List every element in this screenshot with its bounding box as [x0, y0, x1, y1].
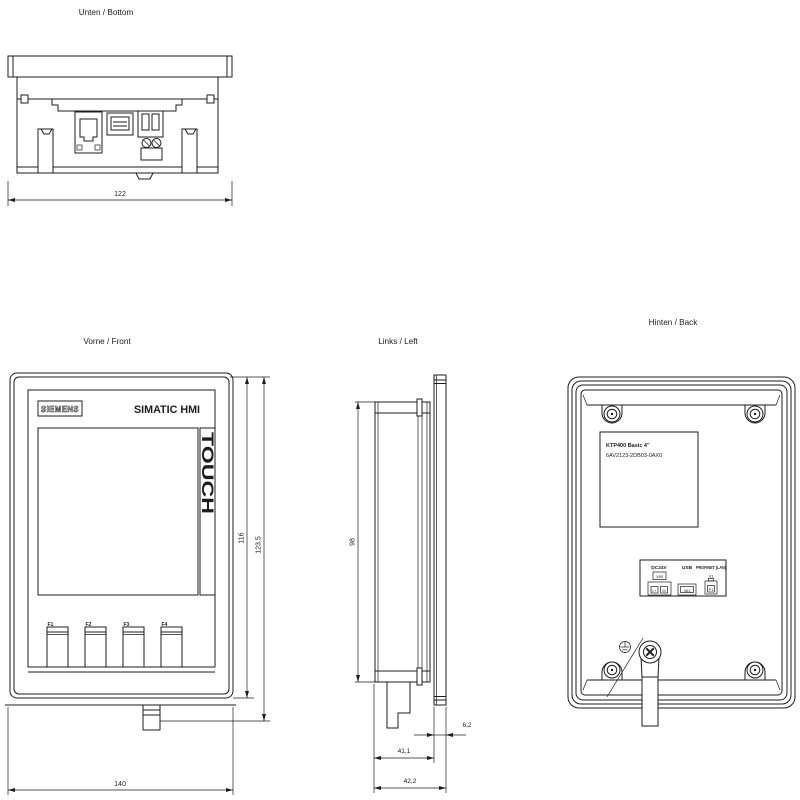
function-key-f3: F3	[123, 622, 144, 667]
power-pin-l-label: L+	[652, 589, 657, 593]
bottom-view: Unten / Bottom	[0, 0, 260, 215]
screw-bottom-right-icon	[745, 662, 765, 680]
mounting-clip-left	[38, 129, 53, 173]
dimension-width-140: 140	[8, 707, 233, 795]
dim-122-label: 122	[114, 191, 126, 198]
lan-interface-id: X1	[709, 574, 715, 579]
dimension-depth-42-2: 42,2	[374, 778, 446, 790]
type-plate-model: KTP400 Basic 4"	[606, 443, 650, 449]
power-port-legend: DC24V X80 L+ M	[648, 565, 671, 595]
touch-text: TOUCH	[198, 432, 216, 514]
dim-41-1-label: 41,1	[398, 748, 411, 755]
power-connector-icon	[138, 111, 163, 160]
dim-116-label: 116	[239, 532, 246, 543]
ethernet-port-icon	[75, 112, 102, 153]
screw-top-right-icon	[745, 405, 765, 423]
front-view-title: Vorne / Front	[83, 337, 131, 346]
display-area	[38, 428, 198, 595]
left-view: Links / Left 98	[330, 330, 510, 800]
technical-drawing-page: Unten / Bottom	[0, 0, 800, 800]
mounting-clip-right	[182, 129, 197, 173]
product-text: SIMATIC HMI	[134, 404, 200, 416]
dimension-depth-41-1: 41,1	[374, 684, 434, 793]
usb-connector-id: X61	[683, 588, 691, 593]
usb-port-legend: USB X61	[678, 565, 696, 595]
key-f2-label: F2	[86, 622, 92, 628]
key-f3-label: F3	[124, 622, 130, 628]
left-connector-step	[387, 682, 410, 728]
dimension-height-98: 98	[350, 402, 376, 682]
dim-123-5-label: 123,5	[256, 536, 263, 554]
usb-port-icon	[107, 113, 133, 135]
bottom-center-tab	[136, 173, 153, 179]
touchscreen: TOUCH	[38, 428, 216, 595]
brand-text: SIEMENS	[41, 405, 79, 414]
bottom-view-title: Unten / Bottom	[79, 8, 134, 17]
type-plate-order-number: 6AV2123-2DB03-0AX0	[606, 453, 662, 459]
usb-socket-icon: X61	[678, 584, 696, 595]
key-f1-label: F1	[48, 622, 54, 628]
left-bezel-profile	[434, 375, 446, 705]
lan-label: PROFINET (LAN)	[696, 565, 726, 570]
function-key-f1: F1	[47, 622, 68, 667]
type-plate: KTP400 Basic 4" 6AV2123-2DB03-0AX0	[600, 432, 698, 527]
function-keys: F1 F2 F3 F4	[47, 622, 182, 667]
dim-6-2-label: 6,2	[462, 722, 471, 729]
power-connector-id: X80	[656, 574, 664, 579]
connector-legend: DC24V X80 L+ M USB X61	[640, 560, 726, 596]
power-terminal-icon: L+ M	[648, 582, 671, 595]
siemens-logo: SIEMENS	[38, 401, 82, 416]
dim-140-label: 140	[114, 781, 126, 788]
left-view-title: Links / Left	[378, 337, 418, 346]
power-pin-m-label: M	[662, 589, 665, 593]
back-view: Hinten / Back	[540, 300, 800, 760]
profinet-port-legend: PROFINET (LAN) X1 P1	[696, 565, 726, 594]
ground-screw-boss	[639, 641, 661, 726]
lan-port-id: P1	[709, 588, 714, 592]
power-label: DC24V	[651, 565, 667, 571]
ground-icon	[620, 642, 631, 653]
key-f4-label: F4	[162, 622, 168, 628]
back-housing	[568, 377, 795, 708]
front-bottom-tab	[5, 705, 236, 730]
function-key-f4: F4	[161, 622, 182, 667]
function-key-f2: F2	[85, 622, 106, 667]
bottom-bezel	[8, 56, 232, 77]
front-view: Vorne / Front SIEMENS SIMATIC HMI TOUCH …	[0, 330, 310, 800]
dim-98-label: 98	[350, 538, 357, 546]
usb-label: USB	[682, 565, 693, 571]
screw-top-left-icon	[602, 405, 622, 423]
back-bottom-tab	[642, 677, 658, 726]
lan-socket-icon: P1	[705, 579, 717, 595]
dimension-width-122: 122	[8, 181, 232, 206]
left-body-profile	[375, 399, 430, 728]
back-view-title: Hinten / Back	[649, 318, 699, 327]
dimension-bezel-6-2: 6,2	[414, 707, 472, 793]
dim-42-2-label: 42,2	[404, 778, 417, 785]
